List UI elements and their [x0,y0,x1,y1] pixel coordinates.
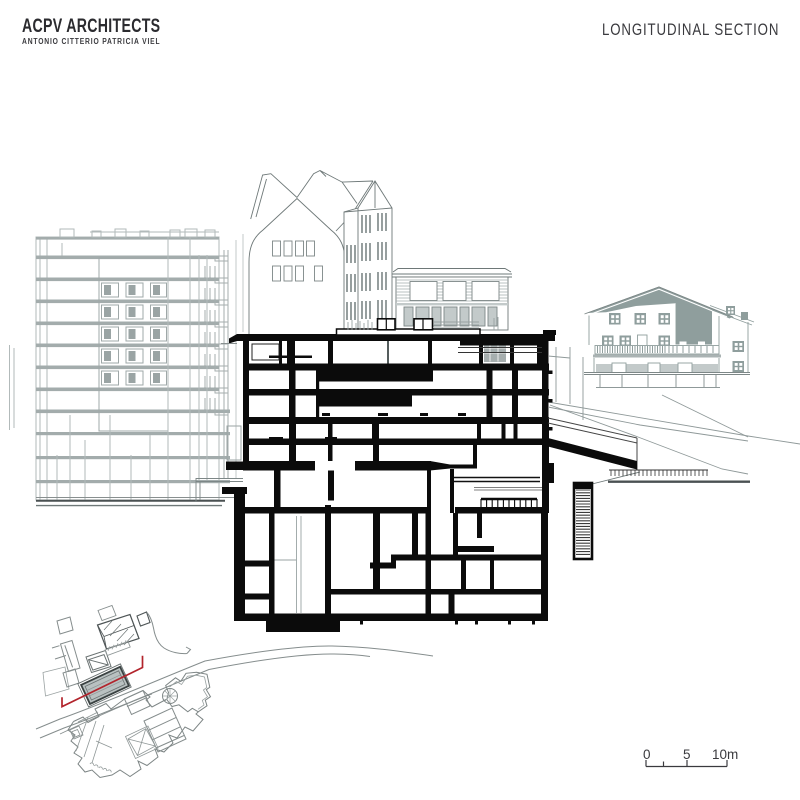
svg-text:10m: 10m [712,747,738,762]
svg-text:0: 0 [643,747,651,762]
svg-text:5: 5 [683,747,691,762]
